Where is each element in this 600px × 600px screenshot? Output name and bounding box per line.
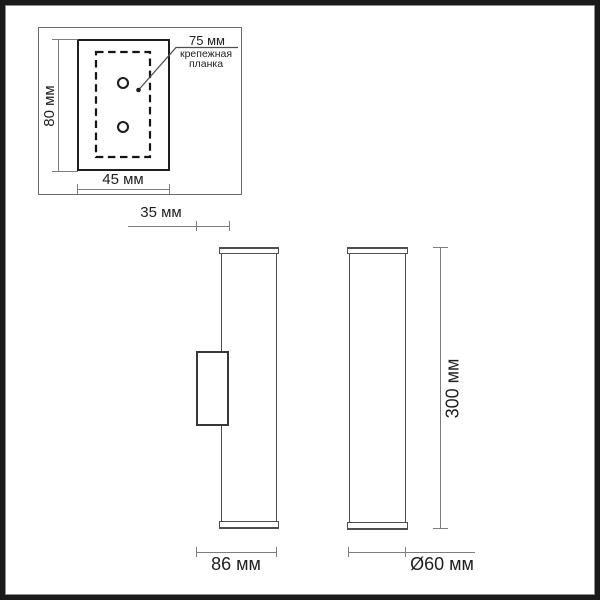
dim-60-tick-right (405, 547, 406, 557)
lamp-left-body (221, 248, 277, 528)
technical-drawing-canvas: 75 мм крепежная планка 80 мм 45 мм 35 мм… (0, 0, 600, 600)
lamp-left-cap-top (219, 247, 279, 254)
dim-35-tick-left (196, 221, 197, 231)
mount-plate-caption: крепежная планка (172, 50, 240, 69)
dim-86-label: 86 мм (203, 555, 269, 575)
dim-300-line (440, 248, 441, 528)
dim-80-tick-top (52, 39, 78, 40)
dim-45-tick-left (77, 184, 78, 194)
dim-86-line (196, 552, 277, 553)
mount-plate-rect (77, 39, 170, 171)
dim-35-tick-right (229, 221, 230, 231)
dim-60-label: Ø60 мм (407, 555, 477, 575)
dim-35-label: 35 мм (130, 205, 192, 222)
lamp-right-cap-bottom (347, 522, 408, 530)
dim-86-tick-left (196, 547, 197, 557)
dim-35-line (128, 226, 230, 227)
dim-80-tick-bottom (52, 171, 78, 172)
dim-45-label: 45 мм (93, 172, 153, 189)
dim-45-line (77, 189, 170, 190)
lamp-mount-bracket (196, 351, 229, 426)
dim-80-label: 80 мм (42, 71, 58, 141)
dim-300-label: 300 мм (444, 349, 463, 429)
dim-300-tick-top (433, 247, 448, 248)
lamp-left-cap-bottom (219, 521, 279, 529)
dim-86-tick-right (276, 547, 277, 557)
dim-80-line (58, 39, 59, 172)
dim-60-line (348, 552, 475, 553)
mount-plate-caption-line2: планка (172, 60, 240, 70)
dim-75-label: 75 мм (176, 34, 238, 48)
lamp-right-cap-top (347, 247, 408, 254)
dim-300-tick-bottom (433, 528, 448, 529)
lamp-right-body (349, 248, 406, 529)
dim-60-tick-left (348, 547, 349, 557)
dim-45-tick-right (169, 184, 170, 194)
